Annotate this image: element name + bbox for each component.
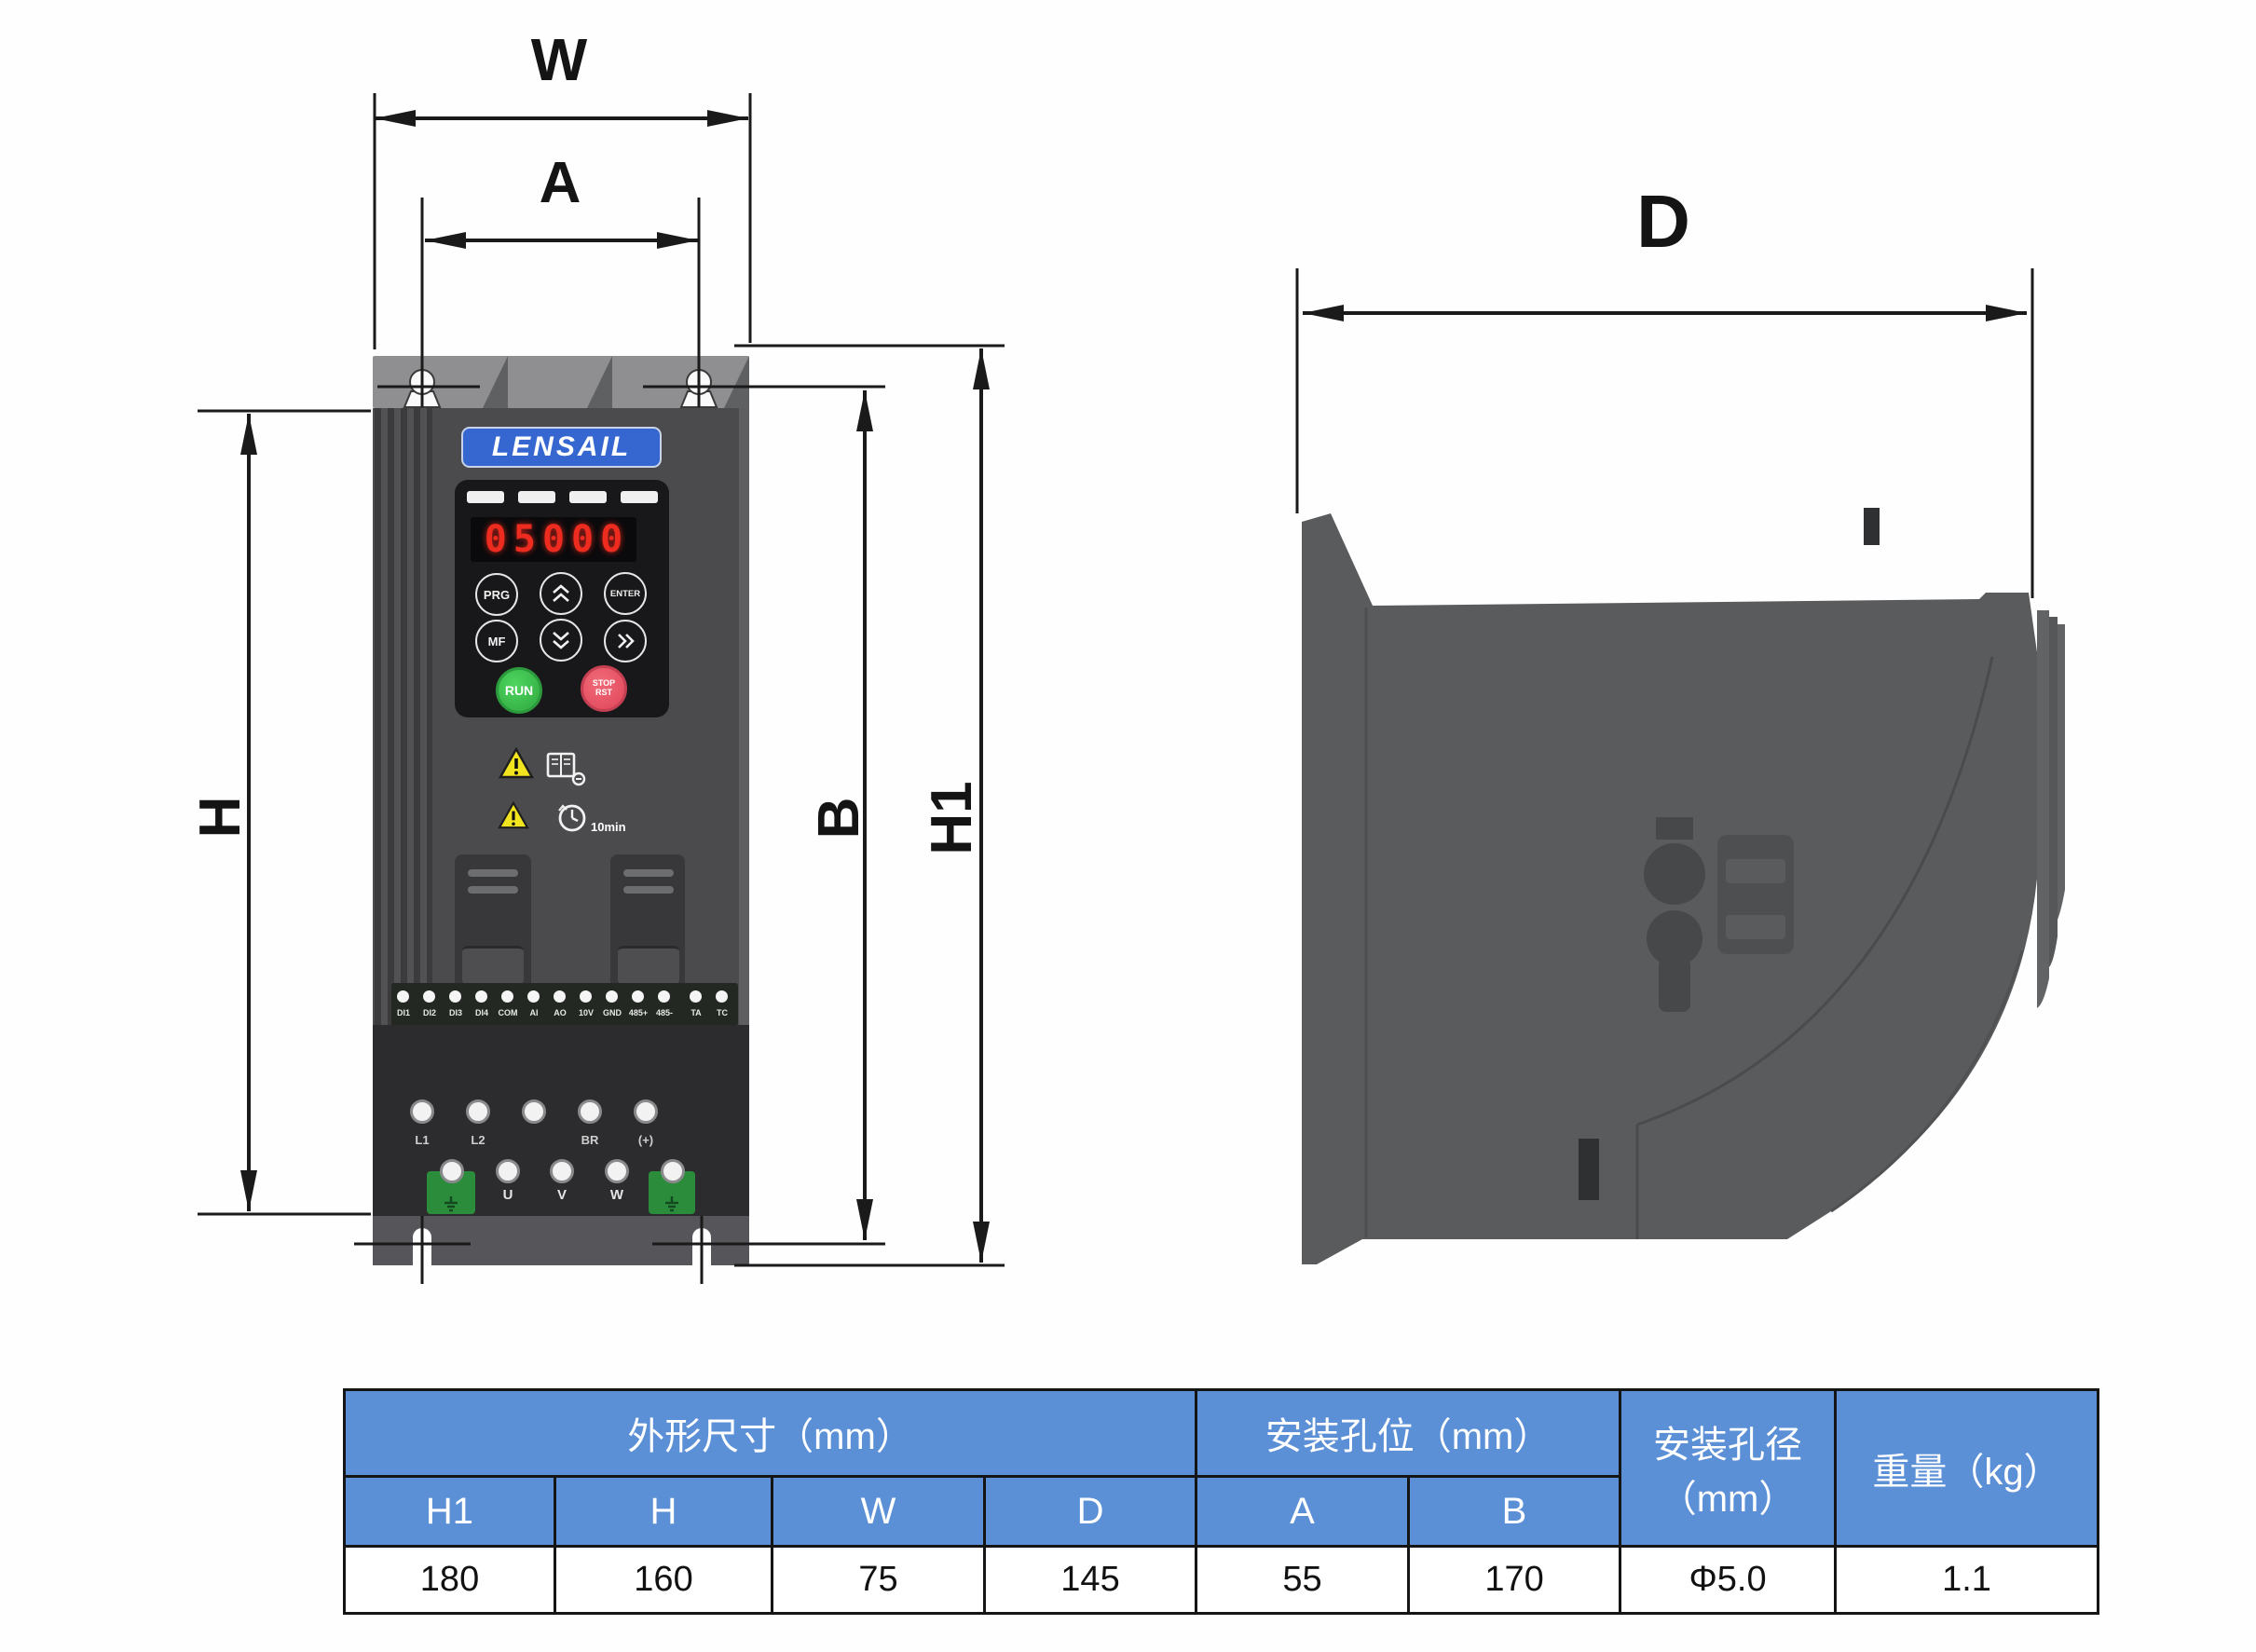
value-b: 170: [1409, 1547, 1620, 1614]
terminal-dot: [716, 990, 728, 1003]
header-hole-diameter-line2: （mm）: [1621, 1468, 1834, 1522]
terminal-dot: [580, 990, 592, 1003]
terminal-label: COM: [494, 1008, 522, 1017]
side-cable-clamp: [1644, 817, 1705, 1012]
dim-label-b: B: [811, 762, 868, 874]
col-header-a: A: [1196, 1477, 1409, 1547]
top-mounting-plate: [373, 356, 749, 408]
arrowhead-down: [856, 1199, 873, 1240]
power-screw: [410, 1099, 434, 1124]
keypad-panel: 05000 PRG ENTER MF: [455, 480, 669, 717]
enter-button[interactable]: ENTER: [604, 572, 647, 615]
terminal-label: DI3: [442, 1008, 470, 1017]
arrowhead-down: [240, 1170, 257, 1211]
terminal-dot: [554, 990, 566, 1003]
terminal-dot: [449, 990, 461, 1003]
terminal-label: GND: [598, 1008, 626, 1017]
chevron-down-icon: [550, 630, 572, 650]
col-header-b: B: [1409, 1477, 1620, 1547]
value-a: 55: [1196, 1547, 1409, 1614]
arrowhead-left: [375, 110, 416, 127]
side-heatsink-fin: [2037, 610, 2049, 1008]
terminal-dot: [475, 990, 487, 1003]
mounting-slot: [413, 1228, 431, 1265]
led-display: 05000: [471, 517, 636, 562]
shift-button[interactable]: [604, 620, 647, 662]
power-terminal-label: L1: [402, 1133, 443, 1147]
col-header-h1: H1: [345, 1477, 555, 1547]
terminal-label: AO: [546, 1008, 574, 1017]
arrowhead-down: [973, 1222, 990, 1263]
brand-logo: LENSAIL: [461, 427, 662, 468]
terminal-label: 485+: [624, 1008, 652, 1017]
terminal-dot: [606, 990, 618, 1003]
header-hole-diameter-line1: 安装孔径: [1621, 1414, 1834, 1468]
power-screw: [522, 1099, 546, 1124]
terminal-dot: [632, 990, 644, 1003]
terminal-dot: [527, 990, 540, 1003]
side-curve-contour: [1637, 657, 1992, 1125]
wiring-cover-left[interactable]: [455, 854, 531, 994]
earth-icon: [663, 1195, 681, 1214]
read-manual-icon: [545, 751, 588, 786]
mf-button[interactable]: MF: [475, 620, 518, 662]
header-outline-dimensions: 外形尺寸（mm）: [345, 1390, 1196, 1477]
chevron-up-icon: [550, 583, 572, 604]
power-terminal-label: V: [541, 1187, 582, 1203]
terminal-label: DI1: [390, 1008, 417, 1017]
discharge-wait-note: 10min: [591, 820, 626, 834]
up-button[interactable]: [540, 572, 582, 615]
arrowhead-left: [425, 232, 466, 249]
earth-icon: [442, 1195, 460, 1214]
power-terminal-label: BR: [569, 1133, 610, 1147]
inverter-front-view: LENSAIL 05000 PRG ENTER: [373, 352, 749, 1265]
terminal-label: DI2: [416, 1008, 444, 1017]
dim-label-d: D: [1589, 184, 1738, 259]
cover-ridge: [623, 886, 674, 894]
dim-label-h1: H1: [923, 753, 981, 883]
led-display-value: 05000: [478, 518, 629, 561]
power-screw: [634, 1099, 658, 1124]
power-screw: [496, 1159, 520, 1183]
terminal-label: 485-: [650, 1008, 678, 1017]
terminal-label: DI4: [468, 1008, 496, 1017]
cover-tab: [462, 946, 524, 985]
warning-triangle-icon: [499, 747, 534, 779]
dim-label-w: W: [503, 30, 615, 89]
side-heatsink-fin: [2058, 624, 2065, 920]
power-terminal-label: L2: [458, 1133, 499, 1147]
prg-button-label: PRG: [484, 588, 510, 602]
col-header-h: H: [555, 1477, 773, 1547]
discharge-wait-clock-icon: [555, 801, 589, 835]
value-h: 160: [555, 1547, 773, 1614]
power-terminal-label: (+): [625, 1133, 666, 1147]
value-weight: 1.1: [1836, 1547, 2099, 1614]
header-weight: 重量（kg）: [1836, 1390, 2099, 1547]
dim-label-a: A: [504, 155, 616, 212]
terminal-label: TC: [708, 1008, 736, 1017]
brand-logo-text: LENSAIL: [492, 431, 631, 463]
cover-ridge: [623, 869, 674, 877]
wiring-cover-right[interactable]: [610, 854, 685, 994]
terminal-label: AI: [520, 1008, 548, 1017]
cover-tab: [618, 946, 679, 985]
arrowhead-up: [240, 414, 257, 455]
stop-reset-button[interactable]: STOP RST: [581, 665, 627, 712]
power-terminal-label: W: [596, 1187, 637, 1203]
col-header-w: W: [773, 1477, 985, 1547]
dim-w: [375, 93, 750, 349]
run-button[interactable]: RUN: [496, 667, 542, 714]
dimension-spec-table: 外形尺寸（mm） 安装孔位（mm） 安装孔径 （mm） 重量（kg） H1 H …: [343, 1388, 2099, 1615]
arrowhead-right: [707, 110, 748, 127]
cover-ridge: [468, 886, 518, 894]
power-screw: [550, 1159, 574, 1183]
terminal-label: TA: [682, 1008, 710, 1017]
header-hole-diameter: 安装孔径 （mm）: [1620, 1390, 1836, 1547]
power-screw: [578, 1099, 602, 1124]
col-header-d: D: [985, 1477, 1196, 1547]
power-terminal-label: U: [487, 1187, 528, 1203]
arrowhead-up: [856, 390, 873, 431]
mf-button-label: MF: [488, 635, 506, 649]
stop-label-line2: RST: [595, 689, 612, 698]
terminal-dot: [658, 990, 670, 1003]
power-screw: [661, 1159, 685, 1183]
terminal-dot: [423, 990, 435, 1003]
power-screw: [440, 1159, 464, 1183]
value-w: 75: [773, 1547, 985, 1614]
status-indicator-pill: [569, 491, 607, 503]
power-screw: [466, 1099, 490, 1124]
side-label-text-blur: [1726, 859, 1785, 883]
side-label-text-blur: [1726, 915, 1785, 939]
value-hole-dia: Φ5.0: [1620, 1547, 1836, 1614]
arrowhead-right: [1986, 305, 2027, 321]
status-indicator-pill: [621, 491, 658, 503]
header-mounting-holes: 安装孔位（mm）: [1196, 1390, 1620, 1477]
down-button[interactable]: [540, 619, 582, 662]
terminal-dot: [397, 990, 409, 1003]
side-heatsink-fin: [2049, 617, 2058, 967]
dim-label-h: H: [192, 761, 250, 873]
dimension-drawing-page: LENSAIL 05000 PRG ENTER: [0, 0, 2256, 1652]
arrowhead-right: [657, 232, 698, 249]
side-slot-top: [1864, 508, 1880, 545]
side-slot-bottom: [1579, 1139, 1599, 1200]
value-h1: 180: [345, 1547, 555, 1614]
signal-terminal-strip: DI1 DI2 DI3 DI4 COM AI AO 10V GND 485+ 4…: [391, 983, 738, 1026]
warning-triangle-icon: [498, 801, 529, 829]
mounting-slot: [692, 1228, 711, 1265]
chevron-right-double-icon: [614, 631, 636, 651]
enter-button-label: ENTER: [610, 589, 640, 599]
cover-ridge: [468, 869, 518, 877]
terminal-dot: [690, 990, 702, 1003]
arrowhead-left: [1303, 305, 1344, 321]
side-label-patch: [1717, 835, 1794, 954]
terminal-label: 10V: [572, 1008, 600, 1017]
side-view-silhouette: [1302, 513, 2037, 1264]
terminal-dot: [501, 990, 513, 1003]
dim-d: [1297, 268, 2032, 598]
status-indicator-pill: [518, 491, 555, 503]
prg-button[interactable]: PRG: [475, 573, 518, 616]
arrowhead-up: [973, 348, 990, 389]
run-button-label: RUN: [505, 683, 533, 698]
side-curve-contour-2: [1831, 950, 2022, 1211]
status-indicator-pill: [467, 491, 504, 503]
value-d: 145: [985, 1547, 1196, 1614]
power-screw: [605, 1159, 629, 1183]
